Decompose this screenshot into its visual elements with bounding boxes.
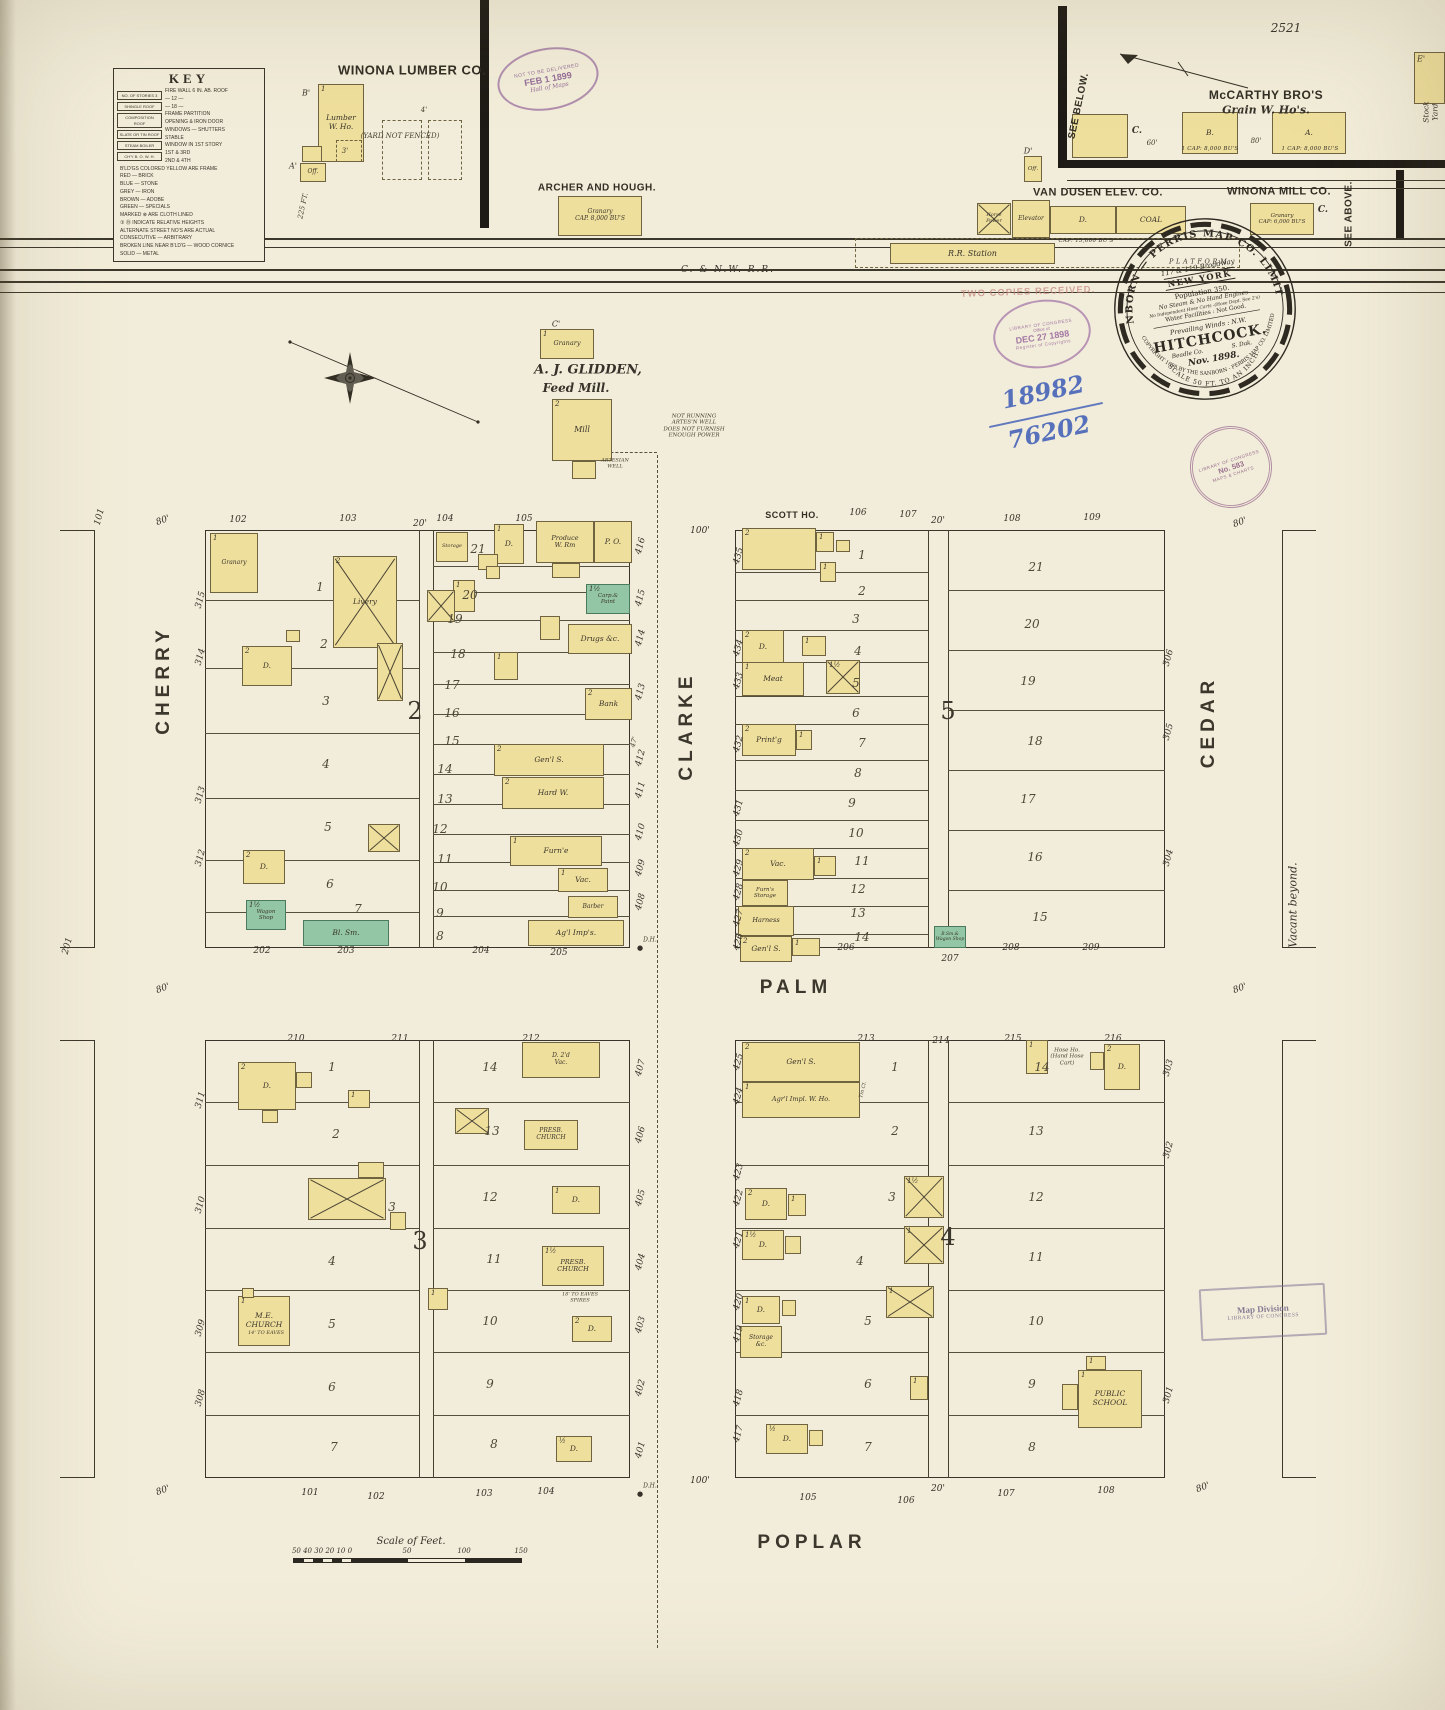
legend-row: FRAME PARTITION bbox=[165, 111, 261, 119]
story-count: ½ bbox=[559, 1438, 566, 1445]
printing-office: 2Print'g bbox=[742, 724, 796, 756]
building-label: D. bbox=[1118, 1063, 1126, 1072]
map-label: Grain W. Ho's. bbox=[1222, 105, 1310, 118]
building-label: Vac. bbox=[770, 860, 786, 869]
legend-symbol: NO. OF STORIES 3 bbox=[117, 91, 162, 100]
building bbox=[1062, 1384, 1078, 1410]
produce-wareroom: Produce W. Rm bbox=[536, 521, 594, 563]
map-label: 18' TO EAVES SPIRES bbox=[562, 1292, 598, 1304]
map-label: 10 bbox=[848, 827, 863, 841]
building bbox=[358, 1162, 384, 1178]
building-label: D. bbox=[260, 863, 268, 872]
legend-row: ALTERNATE STREET NO'S ARE ACTUAL bbox=[120, 228, 261, 236]
compass-rose-icon bbox=[288, 330, 483, 430]
lot-line bbox=[433, 566, 630, 567]
map-label: 101 bbox=[93, 507, 107, 526]
story-count: 1 bbox=[513, 838, 517, 845]
building-label: Gen'l S. bbox=[534, 756, 563, 765]
map-label: (YARD NOT FENCED) bbox=[361, 132, 440, 140]
map-label: 16 bbox=[1027, 851, 1042, 865]
alley-line bbox=[419, 1040, 420, 1478]
map-label: 107 bbox=[997, 1489, 1014, 1499]
general-store: 2Gen'l S. bbox=[740, 936, 792, 962]
map-label: ● bbox=[637, 944, 643, 952]
alley-line bbox=[948, 1040, 949, 1478]
map-label: 1 bbox=[858, 549, 866, 563]
scale-tick-50: 50 bbox=[403, 1547, 412, 1555]
map-label: 80' bbox=[155, 1484, 172, 1498]
building-label: R.R. Station bbox=[948, 249, 997, 258]
scale-segment bbox=[304, 1559, 313, 1562]
map-line bbox=[1282, 1040, 1316, 1041]
legend-row: 2ND & 4TH bbox=[165, 158, 261, 166]
story-count: 2 bbox=[246, 852, 250, 859]
scale-of-feet: Scale of Feet. 50 40 30 20 10 0 50 100 1… bbox=[280, 1536, 542, 1563]
map-label: 409 bbox=[634, 858, 648, 877]
story-count: 2 bbox=[588, 690, 592, 697]
story-count: 1½ bbox=[745, 1232, 756, 1239]
lot-line bbox=[948, 1228, 1165, 1229]
legend-row: — 12 — bbox=[165, 96, 261, 104]
building-label: Off. bbox=[307, 169, 318, 176]
lot-line bbox=[433, 834, 630, 835]
wagon-shop: 1½Wagon Shop bbox=[246, 900, 286, 930]
map-label: 210 bbox=[287, 1034, 304, 1044]
building-label: D. bbox=[759, 643, 767, 652]
building-label: D. bbox=[759, 1241, 767, 1250]
building: 1 bbox=[814, 856, 836, 876]
lot-line bbox=[205, 1228, 419, 1229]
map-label: 12 bbox=[432, 823, 447, 837]
scale-segment bbox=[294, 1559, 304, 1562]
legend-row: 1ST & 3RD bbox=[165, 150, 261, 158]
map-label: 14 bbox=[437, 763, 452, 777]
archer-hough-title: ARCHER AND HOUGH. bbox=[538, 182, 656, 194]
dwelling: 2D. bbox=[572, 1316, 612, 1342]
map-label: 4 bbox=[856, 1255, 864, 1269]
building bbox=[302, 146, 322, 162]
story-count: 1 bbox=[543, 331, 547, 338]
map-label: 412 bbox=[634, 748, 648, 767]
story-count: 1 bbox=[241, 1298, 245, 1305]
building: 1 bbox=[904, 1226, 944, 1264]
building-label: Granary CAP. 8,000 BU'S bbox=[575, 209, 625, 223]
scale-tick-150: 150 bbox=[514, 1547, 527, 1555]
lot-line bbox=[735, 790, 928, 791]
map-label: 415 bbox=[634, 588, 648, 607]
building bbox=[1090, 1052, 1104, 1070]
legend-symbol: SLATE OR TIN ROOF bbox=[117, 130, 162, 139]
map-line bbox=[1282, 1477, 1316, 1478]
building: 1 bbox=[802, 636, 826, 656]
scale-segment bbox=[313, 1559, 323, 1562]
building: 1 bbox=[1086, 1356, 1106, 1370]
building: 1 bbox=[816, 532, 834, 552]
map-label: 12 bbox=[1028, 1191, 1043, 1205]
map-label: 11 bbox=[854, 855, 869, 869]
building-label: Horse Power bbox=[986, 213, 1002, 225]
map-label: 15 bbox=[1032, 911, 1047, 925]
building-label: D. bbox=[570, 1445, 578, 1454]
map-label: 7 bbox=[330, 1441, 338, 1455]
map-label: 103 bbox=[475, 1489, 492, 1499]
map-division-stamp: Map Division LIBRARY OF CONGRESS bbox=[1199, 1283, 1328, 1342]
map-label: 20' bbox=[413, 519, 427, 529]
vacant-store: 1Vac. bbox=[558, 868, 608, 892]
legend-row: STABLE bbox=[165, 135, 261, 143]
scale-segment bbox=[323, 1559, 332, 1562]
block-number-4: 4 bbox=[940, 1224, 955, 1252]
map-label: 3 bbox=[852, 613, 860, 627]
dwelling: ½D. bbox=[766, 1424, 808, 1454]
glidden-title: A. J. GLIDDEN, bbox=[534, 364, 642, 379]
map-label: 60' bbox=[1147, 139, 1158, 147]
dwelling: 2D. bbox=[238, 1062, 296, 1110]
lot-line bbox=[948, 1352, 1165, 1353]
building-label: D. bbox=[588, 1325, 596, 1334]
map-label: Stock Yard bbox=[1422, 101, 1439, 122]
implement-warehouse: 1Agr'l Impl. W. Ho. bbox=[742, 1082, 860, 1118]
map-label: 12 bbox=[482, 1191, 497, 1205]
lot-line bbox=[735, 600, 928, 601]
map-label: 16 bbox=[444, 707, 459, 721]
map-label: 102 bbox=[229, 515, 246, 525]
map-label: 4' bbox=[421, 106, 427, 114]
building-label: PRESB. CHURCH bbox=[557, 1259, 589, 1274]
map-label: 80' bbox=[155, 514, 172, 528]
dwelling: 2D. bbox=[243, 850, 285, 884]
map-line bbox=[657, 455, 658, 1648]
presbyterian-chapel: PRESB. CHURCH bbox=[524, 1120, 578, 1150]
alley-line bbox=[419, 530, 420, 948]
building-label: Granary bbox=[222, 560, 247, 567]
map-label: 5 bbox=[852, 677, 860, 691]
building-label: Wagon Shop bbox=[257, 909, 276, 922]
map-label: 21 bbox=[470, 543, 485, 557]
map-label: 80' bbox=[155, 982, 172, 996]
story-count: 1 bbox=[213, 535, 217, 542]
map-label: 5 bbox=[324, 821, 332, 835]
building-label: Bank bbox=[599, 700, 618, 709]
dwelling: 2D. bbox=[242, 646, 292, 686]
lot-line bbox=[735, 1415, 928, 1416]
map-label: D.H. bbox=[643, 938, 657, 945]
story-count: 1½ bbox=[907, 1178, 918, 1185]
building-label: P. O. bbox=[605, 538, 621, 547]
cross-braced-icon bbox=[309, 1179, 385, 1219]
story-count: 2 bbox=[745, 632, 749, 639]
map-label: 9 bbox=[1028, 1378, 1036, 1392]
map-label: 108 bbox=[1097, 1486, 1114, 1496]
map-label: 14 bbox=[854, 931, 869, 945]
map-label: 80' bbox=[1232, 982, 1249, 996]
lot-line bbox=[205, 1290, 419, 1291]
dwelling: 1D. bbox=[552, 1186, 600, 1214]
map-label: 208 bbox=[1002, 943, 1019, 953]
building: 1 bbox=[796, 730, 812, 750]
map-label: 414 bbox=[634, 628, 648, 647]
map-line bbox=[1058, 6, 1067, 166]
building-label: Ag'l Imp's. bbox=[556, 929, 596, 938]
map-line bbox=[1282, 530, 1316, 531]
story-count: 1 bbox=[431, 1290, 435, 1297]
block-number-3: 3 bbox=[412, 1228, 427, 1256]
map-label: NOT RUNNING ARTES'N WELL DOES NOT FURNIS… bbox=[663, 413, 724, 438]
map-label: 102 bbox=[367, 1492, 384, 1502]
building-label: Elevator bbox=[1018, 216, 1044, 223]
map-label: 6 bbox=[864, 1378, 872, 1392]
map-label: 103 bbox=[339, 514, 356, 524]
legend-row: GREY — IRON bbox=[120, 189, 261, 197]
lot-line bbox=[205, 798, 419, 799]
map-label: 3 bbox=[388, 1201, 396, 1215]
story-count: 2 bbox=[745, 850, 749, 857]
street-palm: PALM bbox=[760, 977, 832, 999]
story-count: 2 bbox=[241, 1064, 245, 1071]
library-of-congress-stamp: LIBRARY OF CONGRESS No. 583 MAPS & CHART… bbox=[1179, 415, 1282, 518]
blacksmith-wagon-shop: B.Sm.& Wagon Shop bbox=[934, 926, 966, 948]
story-count: 1 bbox=[1089, 1358, 1093, 1365]
copyright-office-stamp: LIBRARY OF CONGRESS Office of DEC 27 189… bbox=[989, 294, 1096, 375]
map-label: 6 bbox=[326, 878, 334, 892]
lumber-office: Off. bbox=[300, 163, 326, 182]
building-label: Produce W. Rm bbox=[551, 535, 578, 550]
lot-line bbox=[948, 1165, 1165, 1166]
storage: Storage bbox=[436, 532, 468, 562]
map-label: C. bbox=[1318, 205, 1328, 215]
story-count: 1 bbox=[321, 86, 325, 93]
lot-line bbox=[948, 590, 1165, 591]
feed-mill: 2Mill bbox=[552, 399, 612, 461]
building-label: B. bbox=[1206, 129, 1214, 138]
map-label: 404 bbox=[634, 1252, 648, 1271]
story-count: ½ bbox=[769, 1426, 776, 1433]
map-label: 8 bbox=[1028, 1441, 1036, 1455]
map-label: 7 bbox=[858, 737, 866, 751]
map-label: 403 bbox=[634, 1315, 648, 1334]
lot-line bbox=[433, 1165, 630, 1166]
lot-line bbox=[735, 1228, 928, 1229]
building: 1 bbox=[886, 1286, 934, 1318]
building: 1 bbox=[820, 562, 836, 582]
lot-line bbox=[205, 912, 419, 913]
dwelling: 1½D. bbox=[742, 1230, 784, 1260]
building bbox=[809, 1430, 823, 1446]
grain-elevator: Elevator bbox=[1012, 200, 1050, 238]
story-count: 1 bbox=[907, 1228, 911, 1235]
story-count: 2 bbox=[555, 401, 559, 408]
map-line bbox=[1282, 1040, 1283, 1478]
map-label: E' bbox=[1417, 54, 1425, 63]
building-label: D. bbox=[1079, 216, 1087, 225]
building-label: D. bbox=[572, 1196, 580, 1205]
map-label: 6 bbox=[328, 1381, 336, 1395]
map-label: 80' bbox=[1232, 516, 1249, 530]
cross-braced-icon bbox=[369, 825, 399, 851]
legend-row: BROKEN LINE NEAR B'LD'G — WOOD CORNICE bbox=[120, 243, 261, 251]
map-label: 104 bbox=[537, 1487, 554, 1497]
map-label: 4 bbox=[322, 758, 330, 772]
map-label: Vacant beyond. bbox=[1288, 862, 1301, 947]
building-label: Drugs &c. bbox=[581, 635, 620, 644]
building-label: Livery bbox=[353, 598, 377, 607]
dwelling: 1D. bbox=[742, 1296, 780, 1324]
map-label: 5 bbox=[864, 1315, 872, 1329]
map-label: 47' bbox=[629, 736, 640, 749]
map-label: 101 bbox=[301, 1488, 318, 1498]
building-label: Agr'l Impl. W. Ho. bbox=[772, 1096, 830, 1103]
map-label: 410 bbox=[634, 822, 648, 841]
story-count: 2 bbox=[336, 558, 340, 565]
building-label: Lumber W. Ho. bbox=[326, 114, 356, 131]
map-label: 13 bbox=[484, 1125, 499, 1139]
map-label: 4 bbox=[854, 645, 862, 659]
building-label: M.E. CHURCH bbox=[246, 1312, 283, 1329]
legend-row: BLUE — STONE bbox=[120, 181, 261, 189]
legend-row: B'LD'GS COLORED YELLOW ARE FRAME bbox=[120, 166, 261, 174]
building bbox=[382, 120, 422, 180]
map-label: 11 bbox=[1028, 1251, 1043, 1265]
map-label: 17 bbox=[1020, 793, 1035, 807]
legend-symbol: STEAM BOILER bbox=[117, 141, 162, 150]
general-store: 2Gen'l S. bbox=[742, 1042, 860, 1082]
lot-line bbox=[205, 1415, 419, 1416]
map-label: 105 bbox=[799, 1493, 816, 1503]
building bbox=[552, 563, 580, 578]
map-label: 214 bbox=[932, 1036, 949, 1046]
building-label: D. 2'd Vac. bbox=[552, 1053, 570, 1067]
meat-market: 1Meat bbox=[742, 662, 804, 696]
story-count: 1½ bbox=[545, 1248, 556, 1255]
story-count: 1 bbox=[913, 1378, 917, 1385]
story-count: 1 bbox=[561, 870, 565, 877]
map-label: 1 bbox=[328, 1061, 336, 1075]
furniture-storage: Furn's Storage bbox=[742, 880, 788, 906]
scott-house: 2 bbox=[742, 528, 816, 570]
map-label: 20 bbox=[462, 589, 477, 603]
post-office: P. O. bbox=[594, 521, 632, 563]
lot-line bbox=[433, 1228, 630, 1229]
building-label: Storage bbox=[442, 544, 462, 550]
scale-segment bbox=[351, 1559, 408, 1562]
presbyterian-church: 1½PRESB. CHURCH bbox=[542, 1246, 604, 1286]
map-line bbox=[94, 530, 95, 948]
lot-line bbox=[948, 1290, 1165, 1291]
building bbox=[262, 1110, 278, 1123]
map-label: 9 bbox=[486, 1378, 494, 1392]
building-label: Hard W. bbox=[538, 789, 569, 798]
block-number-5: 5 bbox=[940, 698, 955, 726]
building-label: B.Sm.& Wagon Shop bbox=[936, 932, 964, 942]
granary: 1Granary bbox=[210, 533, 258, 593]
map-label: 2 bbox=[858, 585, 866, 599]
map-label: 3 bbox=[322, 695, 330, 709]
map-label: 205 bbox=[550, 948, 567, 958]
alley-line bbox=[928, 530, 929, 948]
bank: 2Bank bbox=[585, 688, 632, 720]
map-label: ● bbox=[637, 1490, 643, 1498]
legend-symbol: SHINGLE ROOF bbox=[117, 102, 162, 111]
street-clarke: CLARKE bbox=[676, 671, 698, 780]
building-label: A. bbox=[1305, 129, 1313, 138]
story-count: 2 bbox=[505, 779, 509, 786]
map-line bbox=[480, 0, 489, 228]
building-label: Storage &c. bbox=[749, 1335, 773, 1349]
archer-hough-granary: Granary CAP. 8,000 BU'S bbox=[558, 196, 642, 236]
cross-braced-icon bbox=[887, 1287, 933, 1317]
map-label: 5 bbox=[328, 1318, 336, 1332]
story-count: 2 bbox=[745, 726, 749, 733]
winona-mill-title: WINONA MILL CO. bbox=[1227, 186, 1331, 199]
building-label: Harness bbox=[752, 917, 779, 924]
lot-line bbox=[948, 770, 1165, 771]
building-label: Print'g bbox=[756, 736, 782, 745]
railroad-label: C. & N.W. R.R. bbox=[681, 265, 775, 275]
building-label: D. bbox=[505, 540, 513, 549]
public-school: 1PUBLIC SCHOOL bbox=[1078, 1370, 1142, 1428]
map-label: 13 bbox=[437, 793, 452, 807]
street-poplar: POPLAR bbox=[757, 1532, 866, 1554]
street-cedar: CEDAR bbox=[1198, 676, 1220, 769]
me-church: 1M.E. CHURCH bbox=[238, 1296, 290, 1346]
map-label: 215 bbox=[1004, 1034, 1021, 1044]
alley-line bbox=[948, 530, 949, 948]
alley-line bbox=[433, 1040, 434, 1478]
legend-row: GREEN — SPECIALS bbox=[120, 204, 261, 212]
map-line bbox=[1282, 530, 1283, 948]
map-label: 1 bbox=[891, 1061, 899, 1075]
map-label: 8 bbox=[490, 1438, 498, 1452]
building bbox=[368, 824, 400, 852]
map-label: 416 bbox=[634, 536, 648, 555]
building-label: Bl. Sm. bbox=[332, 929, 359, 938]
lot-line bbox=[735, 696, 928, 697]
map-label: 80' bbox=[1195, 1481, 1212, 1495]
see-above-note: SEE ABOVE. bbox=[1343, 181, 1355, 247]
handwritten-number-2: 76202 bbox=[1005, 410, 1092, 454]
story-count: 2 bbox=[245, 648, 249, 655]
map-label: 11 bbox=[486, 1253, 501, 1267]
scale-title: Scale of Feet. bbox=[280, 1536, 542, 1547]
story-count: 2 bbox=[748, 1190, 752, 1197]
building: 1 bbox=[494, 652, 518, 680]
map-label: 14 bbox=[1034, 1061, 1049, 1075]
barn bbox=[308, 1178, 386, 1220]
map-label: 407 bbox=[634, 1058, 648, 1077]
map-label: 20' bbox=[931, 1484, 945, 1494]
map-label: 216 bbox=[1104, 1034, 1121, 1044]
map-label: 204 bbox=[472, 946, 489, 956]
map-label: 212 bbox=[522, 1034, 539, 1044]
dwelling: 1D. bbox=[494, 524, 524, 564]
map-label: 104 bbox=[436, 514, 453, 524]
map-label: 4 bbox=[328, 1255, 336, 1269]
hose-house-label: Hose Ho. (Hand Hose Cart) bbox=[1050, 1048, 1083, 1067]
story-count: 1 bbox=[791, 1196, 795, 1203]
publisher-seal: SANBORN — PERRIS MAP CO. LIMITED COPYRIG… bbox=[1097, 201, 1312, 416]
scale-tick-100: 100 bbox=[457, 1547, 470, 1555]
building: 1 bbox=[792, 938, 820, 956]
cross-braced-icon bbox=[456, 1109, 488, 1133]
building-label: Vac. bbox=[575, 876, 591, 885]
map-label: C' bbox=[552, 319, 560, 328]
map-label: A' bbox=[289, 161, 297, 170]
map-label: 10 bbox=[432, 881, 447, 895]
building bbox=[572, 461, 596, 479]
glidden-granary: 1Granary bbox=[540, 329, 594, 359]
map-label: 402 bbox=[634, 1378, 648, 1397]
lot-line bbox=[948, 650, 1165, 651]
